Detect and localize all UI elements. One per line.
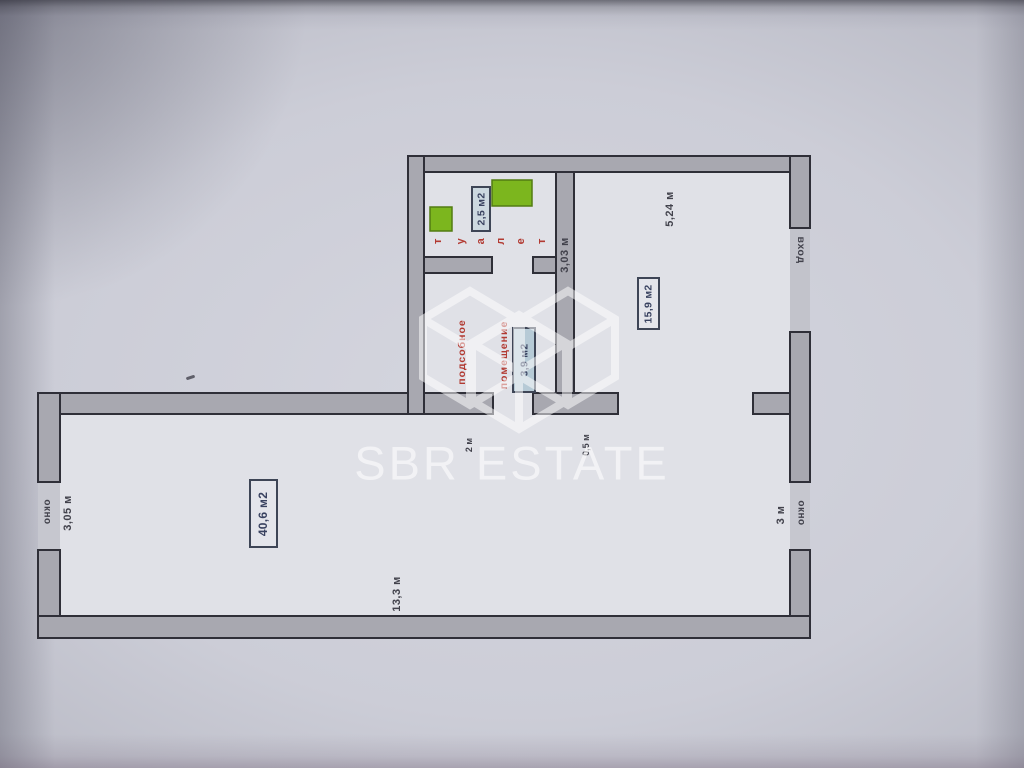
utility-name-line1: подсобное [456, 319, 468, 384]
wall-mid-seg-1 [424, 393, 493, 414]
toilet-letter: у [455, 238, 467, 245]
wall-right-2 [790, 332, 810, 482]
wall-right-1 [790, 156, 810, 228]
window-label-right: окно [796, 500, 807, 525]
window-label-left: окно [42, 499, 53, 524]
utility-area-label: 3,9 м2 [518, 344, 530, 377]
fixture-green-left [430, 207, 452, 231]
dim-main-right: 3 м [775, 506, 787, 525]
main-room-area-box: 40,6 м2 [249, 479, 278, 548]
hall-area-box: 15,9 м2 [637, 277, 660, 330]
utility-area-box: 3,9 м2 [512, 327, 536, 393]
wall-mid-seg-2 [533, 393, 618, 414]
toilet-letter: е [515, 238, 527, 245]
toilet-letter: т [536, 238, 548, 244]
main-room-area-label: 40,6 м2 [257, 491, 271, 535]
entrance-label: вход [795, 237, 807, 264]
wall-toilet-bottom-left [424, 257, 492, 273]
dim-hall-side: 3,03 м [559, 237, 571, 273]
wall-bottom [38, 616, 810, 638]
wall-top [408, 156, 810, 172]
toilet-area-label: 2,5 м2 [475, 193, 487, 226]
toilet-area-box: 2,5 м2 [471, 186, 491, 232]
dim-main-bottom: 13,3 м [391, 576, 403, 612]
fixture-green-top [492, 180, 532, 206]
dim-hall-top: 5,24 м [664, 191, 676, 227]
wall-mid-seg-3 [753, 393, 790, 414]
utility-name-line2: помещение [498, 321, 510, 390]
floorplan-photo: т у а л е т 2,5 м2 3,9 м2 15,9 м2 40,6 м… [0, 0, 1024, 768]
hall-area-label: 15,9 м2 [643, 284, 655, 323]
dim-hall-door: 0,5 м [581, 434, 591, 456]
dim-opening: 2 м [464, 438, 474, 452]
toilet-letter: л [495, 237, 507, 245]
toilet-letter: т [432, 238, 444, 244]
toilet-letter: а [475, 238, 487, 245]
wall-mid-top-left [38, 393, 408, 414]
dim-main-left: 3,05 м [62, 495, 74, 531]
wall-left-1 [38, 393, 60, 482]
wall-toilet-bottom-right [533, 257, 556, 273]
wall-upper-left [408, 156, 424, 414]
wall-central-vertical [556, 168, 574, 414]
